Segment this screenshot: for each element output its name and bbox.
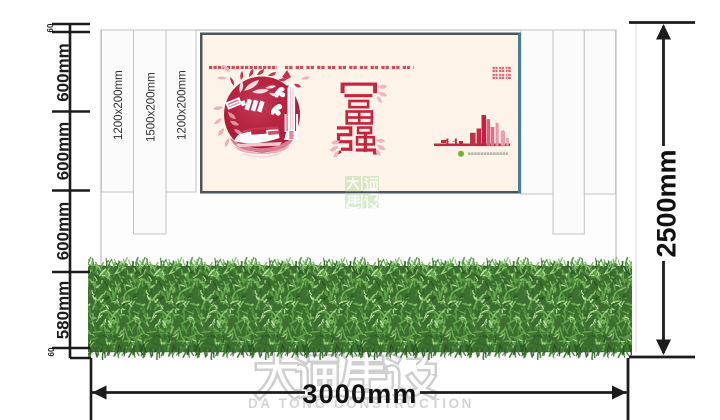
svg-text:1200x200mm: 1200x200mm <box>177 70 189 140</box>
svg-text:600mm: 600mm <box>54 122 73 181</box>
svg-text:1500x200mm: 1500x200mm <box>146 72 158 142</box>
svg-text:1200x200mm: 1200x200mm <box>113 70 125 140</box>
svg-text:2500mm: 2500mm <box>652 149 682 257</box>
svg-text:600mm: 600mm <box>54 202 73 261</box>
svg-text:580mm: 580mm <box>54 281 73 340</box>
svg-text:3000mm: 3000mm <box>302 379 417 409</box>
svg-text:600mm: 600mm <box>54 43 73 102</box>
svg-text:60: 60 <box>47 347 56 356</box>
svg-text:60: 60 <box>46 23 55 32</box>
